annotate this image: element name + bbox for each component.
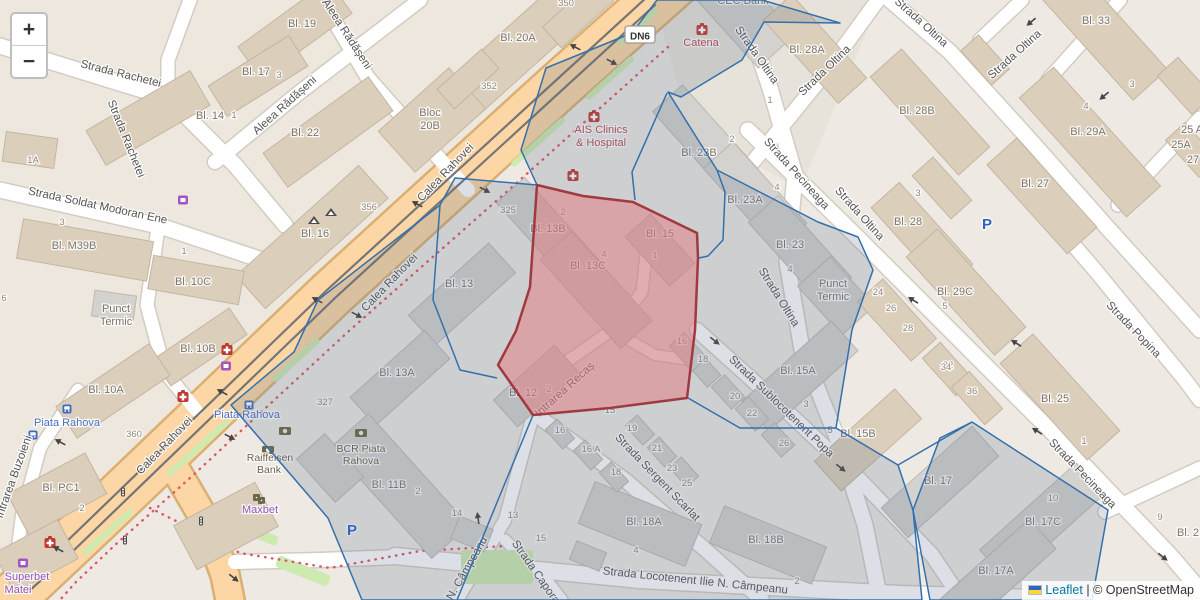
circle — [64, 410, 66, 412]
shop-icon — [178, 196, 188, 205]
housenumber-label: 1 — [767, 95, 772, 106]
attribution-separator: | — [1086, 583, 1089, 597]
shop-icon — [221, 362, 231, 371]
circle — [124, 539, 126, 541]
housenumber-label: 3 — [59, 217, 64, 228]
housenumber-label: 1 — [1081, 436, 1086, 447]
circle — [68, 410, 70, 412]
light-icon — [123, 536, 127, 545]
rect — [181, 198, 186, 202]
street — [980, 0, 1022, 40]
circle — [200, 520, 202, 522]
housenumber-label: 3 — [276, 70, 281, 81]
building-label: Bl. 28 — [894, 216, 922, 228]
building-label: Bl. 16 — [301, 228, 329, 240]
building-label: Bl. 17 — [242, 66, 270, 78]
rect — [64, 406, 70, 409]
shop-label: Superbet — [5, 571, 50, 583]
housenumber-label: 9 — [1157, 512, 1162, 523]
housenumber-label: 360 — [126, 429, 142, 440]
housenumber-label: 3 — [915, 188, 920, 199]
road-shield: DN6 — [625, 26, 655, 43]
housenumber-label: 4 — [1083, 101, 1088, 112]
building-label: Bl. 29C — [937, 286, 973, 298]
oneway-arrow-icon — [1097, 90, 1110, 103]
building — [858, 279, 937, 361]
housenumber-label: 36 — [967, 386, 978, 397]
rect — [47, 542, 54, 544]
bus-icon — [63, 405, 72, 414]
building-label: Bloc — [419, 107, 441, 119]
housenumber-label: 350 — [558, 0, 574, 9]
building-label: Punct — [102, 303, 130, 315]
attribution-bar: Leaflet | © OpenStreetMap — [1022, 581, 1200, 600]
building-label: Bl. M39B — [52, 240, 97, 252]
circle — [261, 500, 263, 502]
building-label: Bl. 22 — [291, 127, 319, 139]
building-label: Bl. 33 — [1082, 15, 1110, 27]
map-container[interactable]: Strada RacheteiStrada RacheteiAleea Rădă… — [0, 0, 1200, 600]
shop-label: Matei — [5, 584, 32, 596]
housenumber-label: 4 — [774, 182, 779, 193]
light-icon — [199, 517, 203, 526]
building-label: Bl. 28B — [899, 105, 934, 117]
road-shield-label: DN6 — [630, 32, 650, 43]
light-icon — [121, 488, 125, 497]
oneway-arrow-icon — [1024, 16, 1037, 29]
housenumber-label: 3 — [1129, 79, 1134, 90]
building-label: Bl. PC1 — [42, 482, 79, 494]
circle — [122, 491, 124, 493]
building-label: Bl. 19 — [288, 18, 316, 30]
street-label: Strada Oltina — [892, 0, 950, 50]
housenumber-label: 352 — [481, 81, 497, 92]
circle — [124, 542, 126, 544]
building-label: 20B — [420, 120, 440, 132]
building-label: Bl. 10A — [88, 384, 124, 396]
building-label: Bl. 28A — [789, 44, 825, 56]
circle — [122, 494, 124, 496]
zoom-control: + − — [10, 12, 48, 79]
building-label: 25 A — [1181, 124, 1200, 136]
building-label: Bl. 14 — [196, 110, 224, 122]
housenumber-label: 1A — [27, 155, 39, 166]
building-label: Bl. 10C — [175, 276, 211, 288]
housenumber-label: 28 — [903, 323, 914, 334]
housenumber-label: 356 — [361, 202, 377, 213]
housenumber-label: 2 — [729, 134, 734, 145]
building-label: Bl. 29A — [1070, 126, 1106, 138]
housenumber-label: 1 — [231, 110, 236, 121]
circle — [200, 523, 202, 525]
building-label: Termic — [100, 316, 133, 328]
housenumber-label: 2 — [79, 503, 84, 514]
rect — [224, 364, 229, 368]
building-label: 27 — [1187, 154, 1199, 166]
leaflet-link[interactable]: Leaflet — [1045, 583, 1083, 597]
building-label: Bl. 10B — [180, 343, 215, 355]
circle — [34, 436, 36, 438]
parking-label: P — [982, 216, 992, 233]
building-label: 25A — [1171, 139, 1191, 151]
building-label: Bl. 20A — [500, 32, 536, 44]
housenumber-label: 34 — [941, 362, 952, 373]
building-label: Bl. 27 — [1021, 178, 1049, 190]
shop-label: Maxbet — [242, 504, 278, 516]
transit-stop-label: Piata Rahova — [34, 417, 101, 429]
leaflet-flag-icon — [1028, 585, 1042, 595]
housenumber-label: 6 — [1, 293, 6, 304]
rect — [21, 561, 26, 565]
housenumber-label: 26 — [886, 303, 897, 314]
housenumber-label: 24 — [873, 287, 884, 298]
map-canvas[interactable]: Strada RacheteiStrada RacheteiAleea Rădă… — [0, 0, 1200, 600]
bank-label: Bank — [257, 464, 282, 476]
building-label: Bl. 25 — [1041, 393, 1069, 405]
rect — [30, 432, 36, 435]
osm-link[interactable]: © OpenStreetMap — [1093, 583, 1194, 597]
circle — [124, 537, 126, 539]
rect — [180, 396, 187, 398]
housenumber-label: 5 — [942, 301, 947, 312]
circle — [256, 497, 258, 499]
building-label: Bl. 2 — [1177, 527, 1199, 539]
circle — [200, 518, 202, 520]
shop-icon — [18, 559, 28, 568]
zoom-out-button[interactable]: − — [12, 46, 46, 77]
zoom-in-button[interactable]: + — [12, 14, 46, 46]
housenumber-label: 1 — [181, 246, 186, 257]
circle — [122, 489, 124, 491]
rect — [224, 349, 231, 351]
